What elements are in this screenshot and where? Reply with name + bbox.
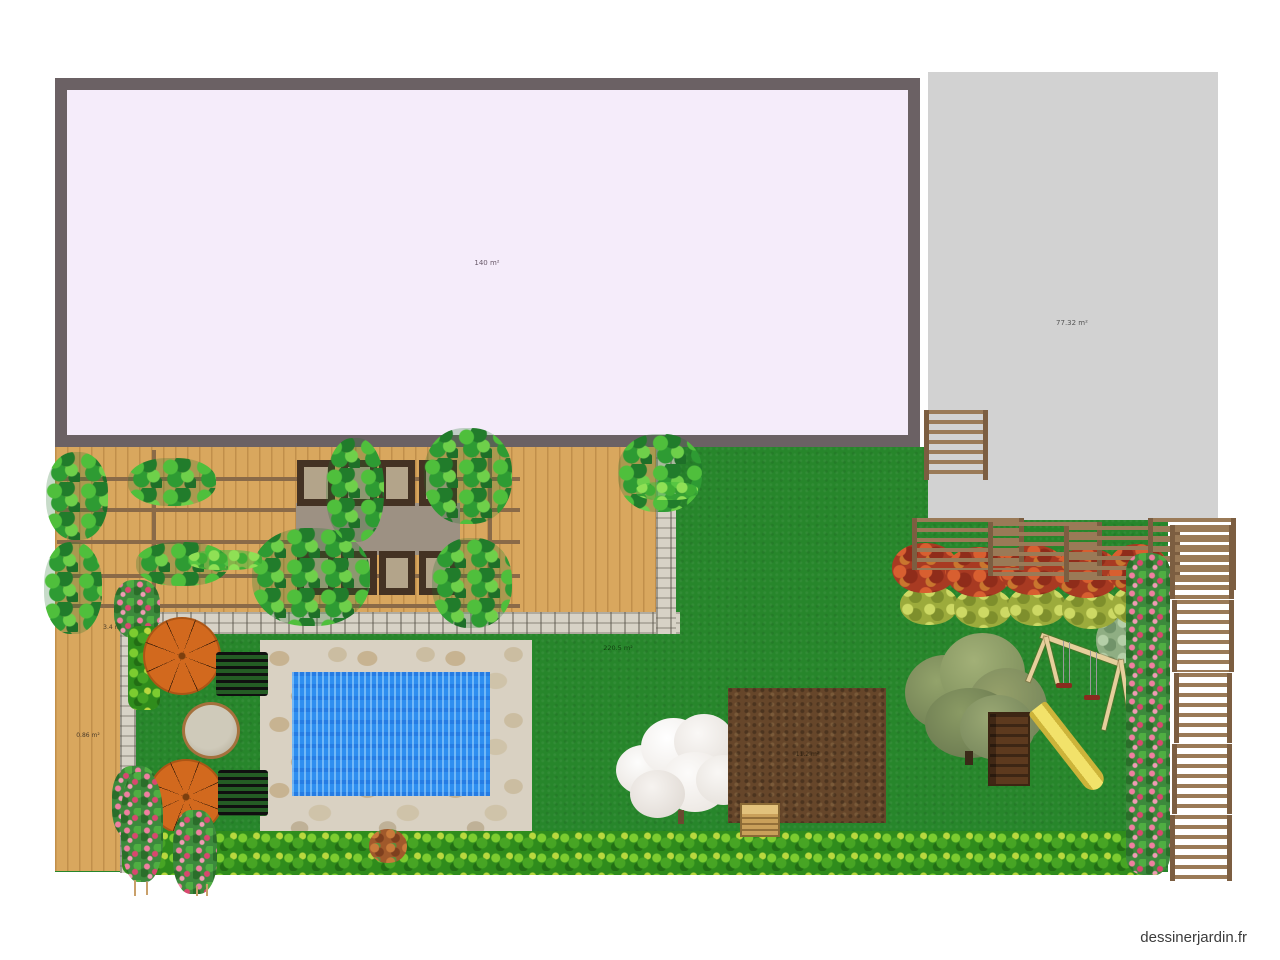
tree-foliage xyxy=(630,770,685,818)
swing-chain xyxy=(1096,652,1097,696)
swing-chain xyxy=(1063,641,1064,683)
slide-tower xyxy=(988,712,1030,786)
house[interactable] xyxy=(55,78,920,447)
vine-plant[interactable] xyxy=(188,550,262,570)
wood-fence[interactable] xyxy=(1172,744,1232,814)
swing-seat xyxy=(1084,695,1100,700)
rose-stem xyxy=(206,884,208,896)
vine-plant[interactable] xyxy=(432,538,512,628)
slide-chute xyxy=(1028,700,1108,794)
swing-seat xyxy=(1056,683,1072,688)
vine-plant[interactable] xyxy=(44,542,102,634)
wood-fence[interactable] xyxy=(1170,815,1232,881)
rose-bush[interactable] xyxy=(173,810,217,894)
tree-trunk xyxy=(965,751,973,765)
wood-fence[interactable] xyxy=(924,410,988,480)
flower-hedge[interactable] xyxy=(122,831,1165,875)
gravel-circle[interactable] xyxy=(182,702,240,759)
rose-stem xyxy=(134,880,136,896)
watermark: dessinerjardin.fr xyxy=(1140,929,1247,946)
rose-stem xyxy=(146,882,148,895)
vine-plant[interactable] xyxy=(424,428,512,524)
rose-bush[interactable] xyxy=(121,772,163,882)
red-shrub[interactable] xyxy=(369,829,407,863)
swing-chain xyxy=(1090,651,1091,695)
tree-trunk xyxy=(678,810,684,824)
swing-chain xyxy=(1069,642,1070,684)
lounge-chair[interactable] xyxy=(379,551,415,595)
wood-fence[interactable] xyxy=(1170,525,1234,599)
parasol[interactable] xyxy=(143,617,221,695)
wood-fence[interactable] xyxy=(1172,600,1234,672)
climbing-roses[interactable] xyxy=(1126,553,1170,875)
vine-plant[interactable] xyxy=(46,452,108,540)
compost-crate[interactable] xyxy=(740,803,780,837)
vine-plant[interactable] xyxy=(636,482,698,500)
vine-plant[interactable] xyxy=(326,438,384,542)
lounge-chair[interactable] xyxy=(379,460,415,506)
garden-plan-canvas: 220.5 m² 77.32 m² 140 m² 3.4 m² 0.86 m² xyxy=(0,0,1280,960)
sun-lounger[interactable] xyxy=(218,770,268,816)
vine-plant[interactable] xyxy=(128,458,216,506)
sun-lounger[interactable] xyxy=(216,652,268,696)
slide[interactable] xyxy=(985,710,1100,820)
vine-plant[interactable] xyxy=(618,434,702,512)
wood-deck-strip[interactable] xyxy=(55,618,120,871)
wood-fence[interactable] xyxy=(1174,673,1232,743)
vine-plant[interactable] xyxy=(252,528,370,626)
rose-stem xyxy=(196,886,198,896)
swimming-pool[interactable] xyxy=(292,672,490,796)
